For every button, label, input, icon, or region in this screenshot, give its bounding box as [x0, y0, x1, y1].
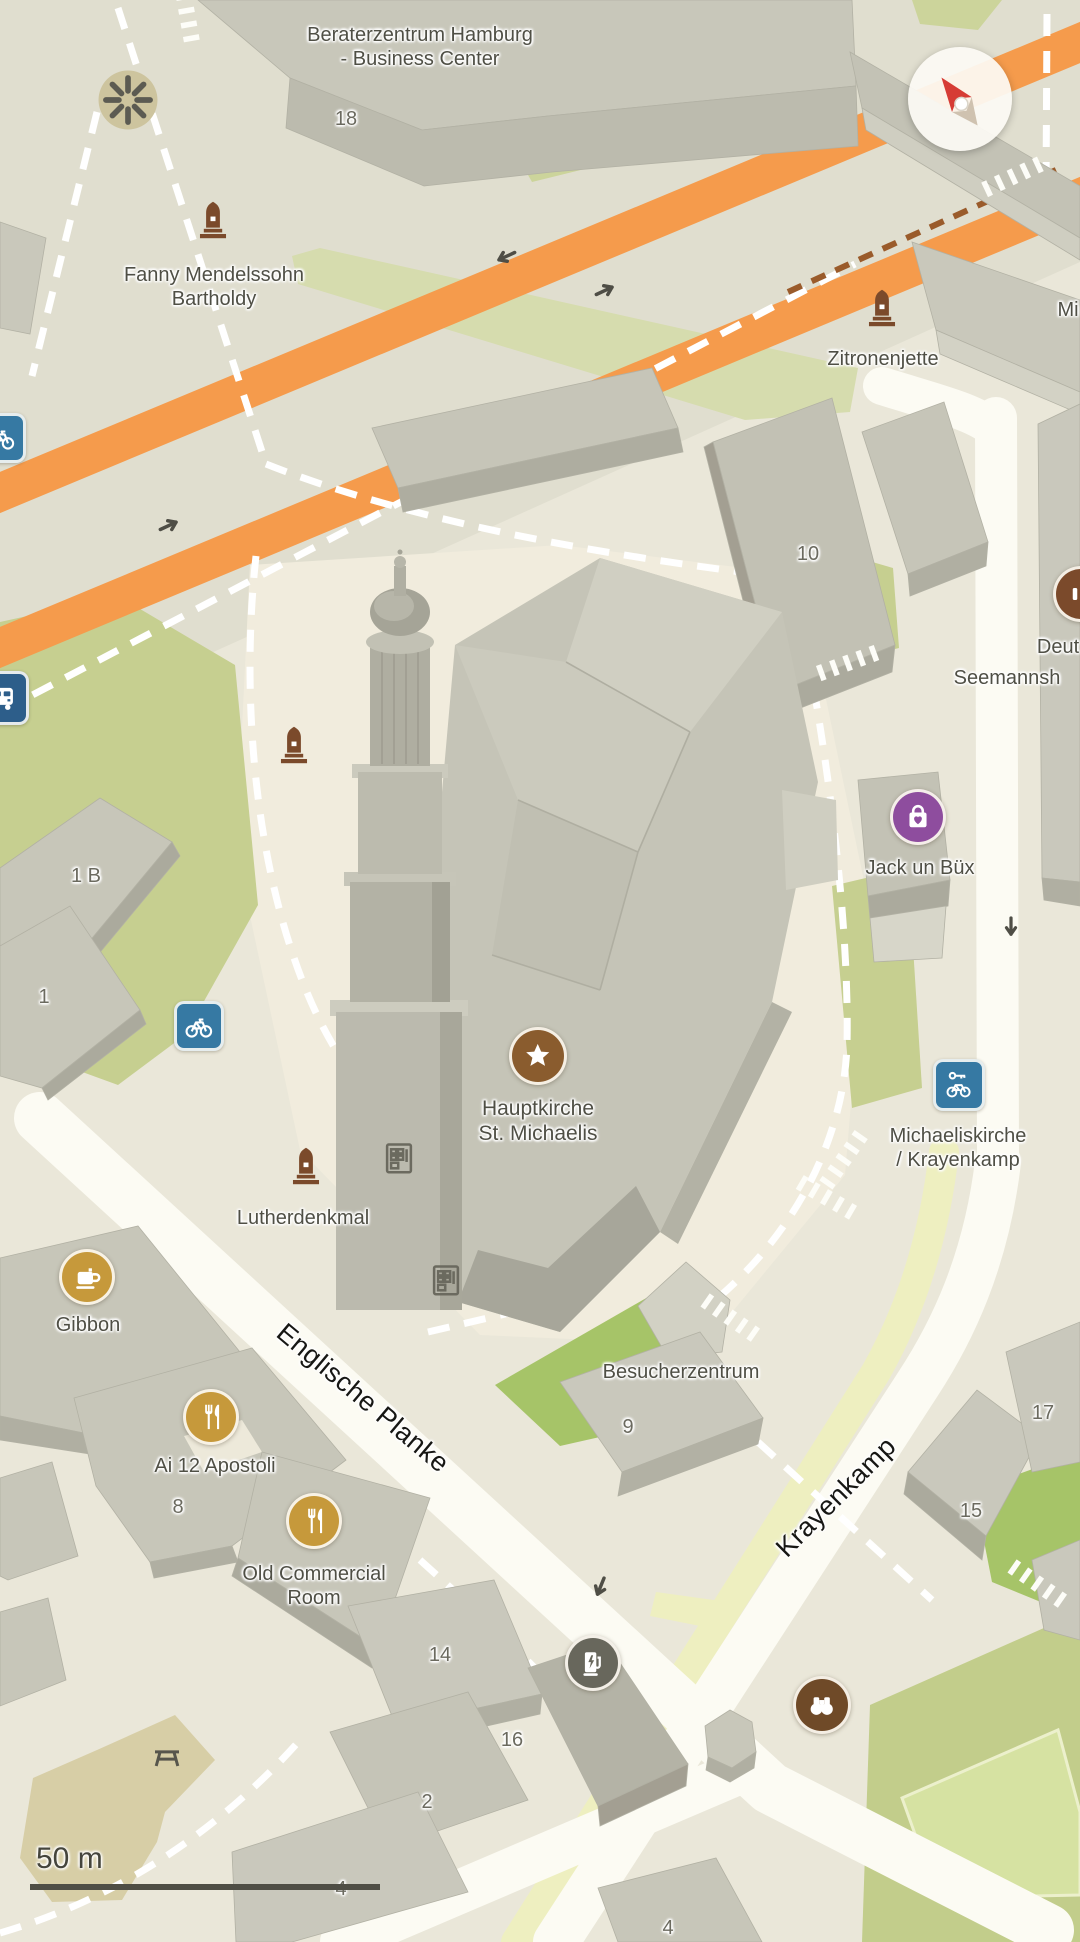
scale-label: 50 m	[36, 1842, 380, 1876]
map-overlay: Beraterzentrum Hamburg - Business Center…	[0, 0, 1080, 1942]
memorial-icon-lutherdenkmal[interactable]	[283, 1143, 329, 1189]
memorial-icon-zitronenjette[interactable]	[859, 285, 905, 331]
binoculars-poi-icon[interactable]	[793, 1676, 851, 1734]
star-poi-icon[interactable]	[509, 1027, 567, 1085]
number-18: 18	[335, 107, 357, 131]
poi-icon-partial-right-edge[interactable]	[1053, 566, 1080, 622]
coffee-poi-icon[interactable]	[59, 1249, 115, 1305]
label-gibbon: Gibbon	[56, 1313, 121, 1337]
bike-rental-key-icon[interactable]	[933, 1059, 985, 1111]
vending-machine-icon-2[interactable]	[427, 1261, 465, 1299]
vending-machine-icon-1[interactable]	[380, 1139, 418, 1177]
oneway-arrow-icon-3	[149, 504, 192, 547]
number-17: 17	[1032, 1401, 1054, 1425]
map-scale: 50 m	[30, 1842, 380, 1890]
bike-rental-icon[interactable]	[174, 1001, 224, 1051]
label-ai-12-apostoli: Ai 12 Apostoli	[154, 1454, 275, 1478]
oneway-arrow-icon-4	[579, 1567, 621, 1609]
number-10: 10	[797, 542, 819, 566]
roundabout-garden-icon	[94, 66, 162, 134]
number-15: 15	[960, 1499, 982, 1523]
number-8: 8	[172, 1495, 183, 1519]
number-4b: 4	[662, 1916, 673, 1940]
label-seemannsh-partial: Seemannsh	[954, 666, 1061, 690]
label-hauptkirche: Hauptkirche St. Michaelis	[478, 1096, 597, 1146]
bus-stop-icon[interactable]	[0, 671, 29, 725]
map-canvas[interactable]: Beraterzentrum Hamburg - Business Center…	[0, 0, 1080, 1942]
label-michaeliskirche: Michaeliskirche / Krayenkamp	[890, 1124, 1027, 1172]
memorial-icon-church-north[interactable]	[271, 722, 317, 768]
shopping-poi-icon[interactable]	[890, 789, 946, 845]
number-2: 2	[421, 1790, 432, 1814]
oneway-arrow-icon-5	[996, 913, 1026, 943]
restaurant-poi-icon-oldcommercial[interactable]	[286, 1493, 342, 1549]
label-old-commercial-room: Old Commercial Room	[242, 1562, 385, 1610]
scale-bar	[30, 1884, 380, 1890]
street-krayenkamp: Krayenkamp	[769, 1430, 903, 1564]
label-beraterzentrum: Beraterzentrum Hamburg - Business Center	[307, 23, 533, 71]
bike-rental-icon-left-edge[interactable]	[0, 413, 26, 463]
street-englische-planke: Englische Planke	[270, 1316, 456, 1479]
memorial-icon-fanny[interactable]	[190, 197, 236, 243]
label-besucherzentrum: Besucherzentrum	[603, 1360, 760, 1384]
number-1b: 1 B	[71, 864, 101, 888]
compass-button[interactable]	[908, 47, 1012, 151]
oneway-arrow-icon-1	[484, 236, 527, 279]
number-9: 9	[622, 1415, 633, 1439]
restaurant-poi-icon-apostoli[interactable]	[183, 1389, 239, 1445]
label-fanny-mendelssohn: Fanny Mendelssohn Bartholdy	[124, 263, 304, 311]
label-deut-partial: Deut	[1037, 635, 1079, 659]
label-jack-un-buex: Jack un Büx	[866, 856, 975, 880]
number-1: 1	[38, 985, 49, 1009]
label-lutherdenkmal: Lutherdenkmal	[237, 1206, 369, 1230]
label-zitronenjette: Zitronenjette	[827, 347, 938, 371]
ev-charging-poi-icon[interactable]	[565, 1635, 621, 1691]
number-14: 14	[429, 1643, 451, 1667]
compass-needle-icon	[923, 62, 997, 136]
label-mi-partial: Mi	[1057, 298, 1078, 322]
picnic-table-icon	[149, 1739, 185, 1775]
number-16: 16	[501, 1728, 523, 1752]
oneway-arrow-icon-2	[585, 269, 628, 312]
